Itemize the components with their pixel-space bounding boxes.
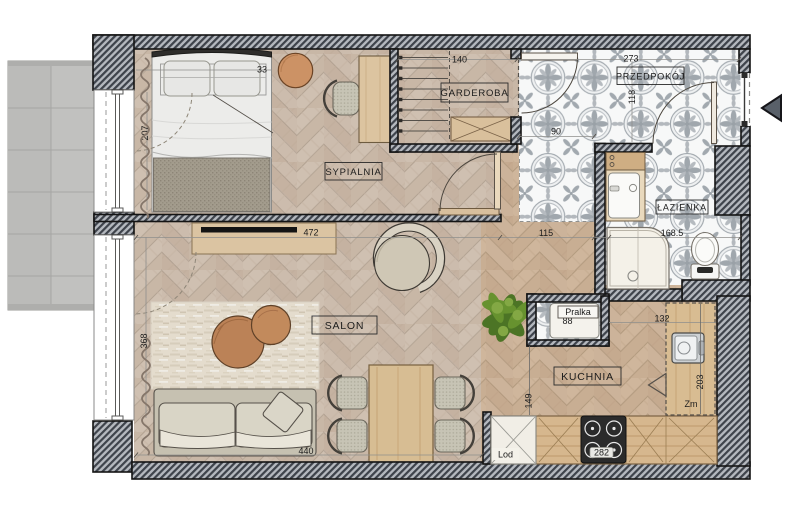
svg-text:368: 368 bbox=[139, 333, 149, 348]
svg-text:ŁAZIENKA: ŁAZIENKA bbox=[657, 203, 707, 213]
svg-text:118: 118 bbox=[627, 90, 637, 104]
svg-text:440: 440 bbox=[298, 446, 313, 456]
svg-text:472: 472 bbox=[303, 228, 318, 238]
svg-text:273: 273 bbox=[623, 54, 638, 64]
svg-text:GARDEROBA: GARDEROBA bbox=[441, 88, 509, 99]
svg-text:140: 140 bbox=[452, 55, 467, 65]
svg-text:282: 282 bbox=[594, 448, 609, 458]
svg-text:PRZEDPOKÓJ: PRZEDPOKÓJ bbox=[616, 72, 685, 82]
svg-text:KUCHNIA: KUCHNIA bbox=[561, 371, 614, 383]
svg-text:90: 90 bbox=[551, 127, 561, 137]
svg-text:33: 33 bbox=[257, 65, 267, 75]
svg-text:SALON: SALON bbox=[325, 320, 365, 332]
svg-text:Zm: Zm bbox=[685, 399, 698, 409]
svg-text:Pralka: Pralka bbox=[565, 307, 591, 317]
svg-text:203: 203 bbox=[695, 374, 705, 389]
svg-text:149: 149 bbox=[524, 393, 534, 408]
svg-text:SYPIALNIA: SYPIALNIA bbox=[325, 167, 381, 178]
svg-text:115: 115 bbox=[539, 228, 553, 238]
svg-text:Lod: Lod bbox=[498, 450, 513, 460]
svg-text:168.5: 168.5 bbox=[661, 228, 684, 238]
svg-text:132: 132 bbox=[654, 314, 669, 324]
